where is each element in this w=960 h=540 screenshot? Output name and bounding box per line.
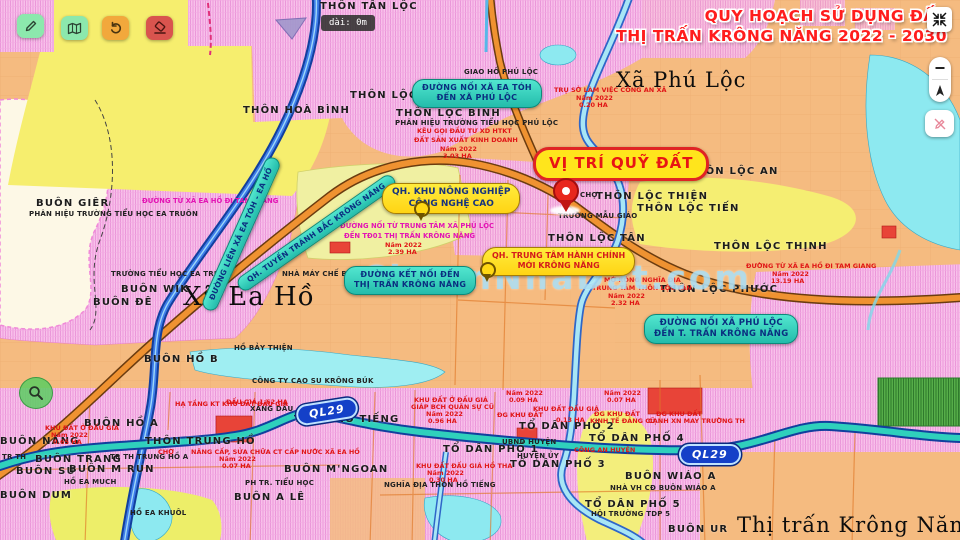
search-icon [28, 385, 44, 401]
callout-road-eatoh: ĐƯỜNG NỐI XÃ EA TÓH ĐẾN XÃ PHÚ LỘC [412, 79, 542, 108]
compass-button[interactable] [929, 80, 951, 102]
callout-phuloc-noi: ĐƯỜNG NỐI XÃ PHÚ LỘC ĐẾN T. TRẤN KRÔNG N… [644, 314, 798, 344]
map-label: ĐẤT SẢN XUẤT KINH DOANH [414, 137, 518, 144]
callout-qh-hanhchinh: QH. TRUNG TÂM HÀNH CHÍNH MỚI KRÔNG NĂNG [482, 247, 635, 276]
map-label: THÔN LỘC [350, 91, 417, 101]
measure-tooltip: dài: 0m [321, 15, 375, 31]
map-label: 2.32 HA [611, 300, 640, 307]
map-label: CHỢ [158, 449, 174, 456]
map-locator-marker[interactable] [19, 377, 53, 409]
map-label: 0.65 HA [53, 439, 82, 446]
undo-icon [109, 21, 123, 35]
callout-vitri-quy-dat: VỊ TRÍ QUỸ ĐẤT [533, 147, 709, 181]
map-application: Xã Phú LộcXã Ea HồThị trấn Krông NăngTHÔ… [0, 0, 960, 540]
road-badge-ql29: QL29 [679, 444, 741, 465]
map-label: BUÔN WIK [121, 285, 189, 295]
map-label: BUÔN A LÊ [234, 493, 305, 503]
map-label: HUYỆN ỦY [517, 453, 559, 460]
legend-button[interactable] [61, 16, 88, 40]
fullscreen-exit-button[interactable] [927, 7, 952, 32]
map-label: TỔ DÂN PHỐ 3 [510, 460, 606, 470]
map-label: TRỤ SỞ LÀM VIỆC CÔNG AN XÃ [554, 87, 667, 94]
map-label: THÔN LỘC TIẾN [637, 204, 740, 214]
map-label: NÂNG CẤP, SỬA CHỮA CT CẤP NƯỚC XÃ EA HỒ [191, 449, 360, 456]
map-label: 0.13 HA [556, 417, 585, 424]
map-book-icon [67, 22, 82, 35]
map-label: THÔN LỘC TÂN [548, 234, 646, 244]
qh-pin-icon[interactable] [414, 201, 430, 217]
map-label: HỒ BẢY THIỆN [234, 345, 293, 352]
map-label: ĐẤU GIÁ 1.62 HA [226, 399, 288, 406]
map-label: THÔN TÂN LỘC [320, 2, 418, 12]
map-label: 0.20 HA [579, 102, 608, 109]
callout-line: ĐẾN XÃ PHÚ LỘC [422, 93, 532, 103]
zoom-out-button[interactable] [929, 57, 951, 79]
map-label: CHỢ [580, 192, 598, 199]
minus-icon [934, 62, 946, 74]
draw-button[interactable] [17, 14, 44, 38]
map-label: HỒ EA MUCH [64, 479, 117, 486]
map-label: CẠNH XN MAY TRƯỜNG TH [648, 418, 745, 425]
callout-line: ĐƯỜNG NỐI XÃ PHÚ LỘC [654, 318, 788, 329]
map-label: UBND HUYỆN [502, 439, 556, 446]
map-label: BUÔN HỒ B [144, 355, 219, 365]
map-label: CÔNG AN HUYỆN [574, 447, 635, 454]
map-label: KÊU GỌI ĐẦU TƯ XD HTKT [417, 128, 512, 135]
map-label: THÔN HOÀ BÌNH [243, 106, 350, 116]
callout-line: THỊ TRẤN KRÔNG NĂNG [354, 280, 466, 290]
map-label: 0.07 HA [222, 463, 251, 470]
map-label: ĐẾN TĐ01 THỊ TRẤN KRÔNG NĂNG [344, 233, 475, 240]
map-label: THÔN LỘC THỊNH [714, 242, 828, 252]
callout-qh-nongnghiep: QH. KHU NÔNG NGHIỆP CÔNG NGHỆ CAO [382, 183, 520, 214]
erase-button[interactable] [146, 16, 173, 40]
callout-line: CÔNG NGHỆ CAO [392, 199, 510, 211]
callout-line: QH. TRUNG TÂM HÀNH CHÍNH [492, 251, 625, 261]
page-title: QUY HOẠCH SỬ DỤNG ĐẤT THỊ TRẤN KRÔNG NĂN… [616, 6, 947, 46]
map-label: BUÔN UR [668, 525, 728, 535]
callout-ketnoi: ĐƯỜNG KẾT NỐI ĐẾN THỊ TRẤN KRÔNG NĂNG [344, 266, 476, 295]
map-label: Thị trấn Krông Năng [737, 515, 960, 536]
callout-line: QH. KHU NÔNG NGHIỆP [392, 187, 510, 199]
location-pin-icon[interactable] [553, 178, 579, 204]
map-label: BUÔN WIÁO A [625, 472, 717, 482]
map-label: KINH TẾ ĐẢNG CŨ [590, 418, 655, 425]
map-label: BUÔN DUM [0, 491, 72, 501]
pencil-icon [24, 19, 38, 33]
undo-button[interactable] [102, 16, 129, 40]
map-label: TR TH TRUNG HỒ A [110, 454, 188, 461]
map-label: TỔ DÂN PHỐ 5 [585, 500, 681, 510]
map-label: ĐƯỜNG TỪ XÃ EA HỒ ĐI TAM GIANG [746, 263, 876, 270]
map-label: TR TH [2, 454, 26, 461]
callout-line: MỚI KRÔNG NĂNG [492, 261, 625, 271]
callout-line: ĐẾN T. TRẤN KRÔNG NĂNG [654, 329, 788, 340]
map-label: TỔ DÂN PHỐ 4 [589, 434, 685, 444]
qh-pin-icon[interactable] [480, 262, 496, 278]
map-label: 0.09 HA [509, 397, 538, 404]
map-label: 2.39 HA [388, 249, 417, 256]
callout-line: ĐƯỜNG KẾT NỐI ĐẾN [354, 270, 466, 280]
map-label: ĐƯỜNG NỐI TỪ TRUNG TÂM XÃ PHÚ LỘC [340, 223, 494, 230]
map-label: ĐG KHU ĐẤT [497, 412, 543, 419]
map-label: PHÂN HIỆU TRƯỜNG TIỂU HỌC PHÚ LỘC [395, 120, 558, 127]
map-label: BUÔN ĐÊ [93, 298, 153, 308]
map-label: PHÂN HIỆU TRƯỜNG TIỂU HỌC EA TRUÔN [29, 211, 198, 218]
map-label: 0.96 HA [428, 418, 457, 425]
map-label: PH TR. TIỂU HỌC [245, 480, 314, 487]
map-label: THÔN LỘC THIỆN [596, 192, 708, 202]
map-label: BUÔN SÚ [16, 467, 76, 477]
map-label: 0.07 HA [607, 397, 636, 404]
zoom-control [929, 57, 951, 102]
disable-draw-button[interactable] [925, 110, 954, 137]
callout-line: ĐƯỜNG NỐI XÃ EA TÓH [422, 83, 532, 93]
map-label: BUÔN M'NGOAN [284, 465, 388, 475]
title-line-2: THỊ TRẤN KRÔNG NĂNG 2022 - 2030 [616, 26, 947, 46]
eraser-icon [153, 21, 167, 35]
title-line-1: QUY HOẠCH SỬ DỤNG ĐẤT [616, 6, 947, 26]
map-label: HỘI TRƯỜNG TDP 5 [591, 511, 670, 518]
map-label: 3.03 HA [443, 153, 472, 160]
compass-icon [934, 84, 946, 98]
map-label: HỒ EA KHUÔL [130, 510, 186, 517]
map-label: BUÔN GIÊR [36, 199, 109, 209]
map-label: CÔNG TY CAO SU KRÔNG BÚK [252, 378, 374, 385]
compress-icon [932, 12, 947, 27]
map-label: GIAO HỒ PHÚ LỘC [464, 69, 538, 76]
map-label: NHÀ VH CĐ BUÔN WIÁO A [610, 485, 716, 492]
map-label: 13.19 HA [771, 278, 804, 285]
map-label: THÔN LỘC BÌNH [396, 109, 501, 119]
map-label: 0.30 HA [429, 477, 458, 484]
pencil-slash-icon [932, 116, 948, 132]
map-label: BUÔN M RUN [69, 465, 155, 475]
map-label: THÔN TRUNG HỒ [145, 437, 256, 447]
